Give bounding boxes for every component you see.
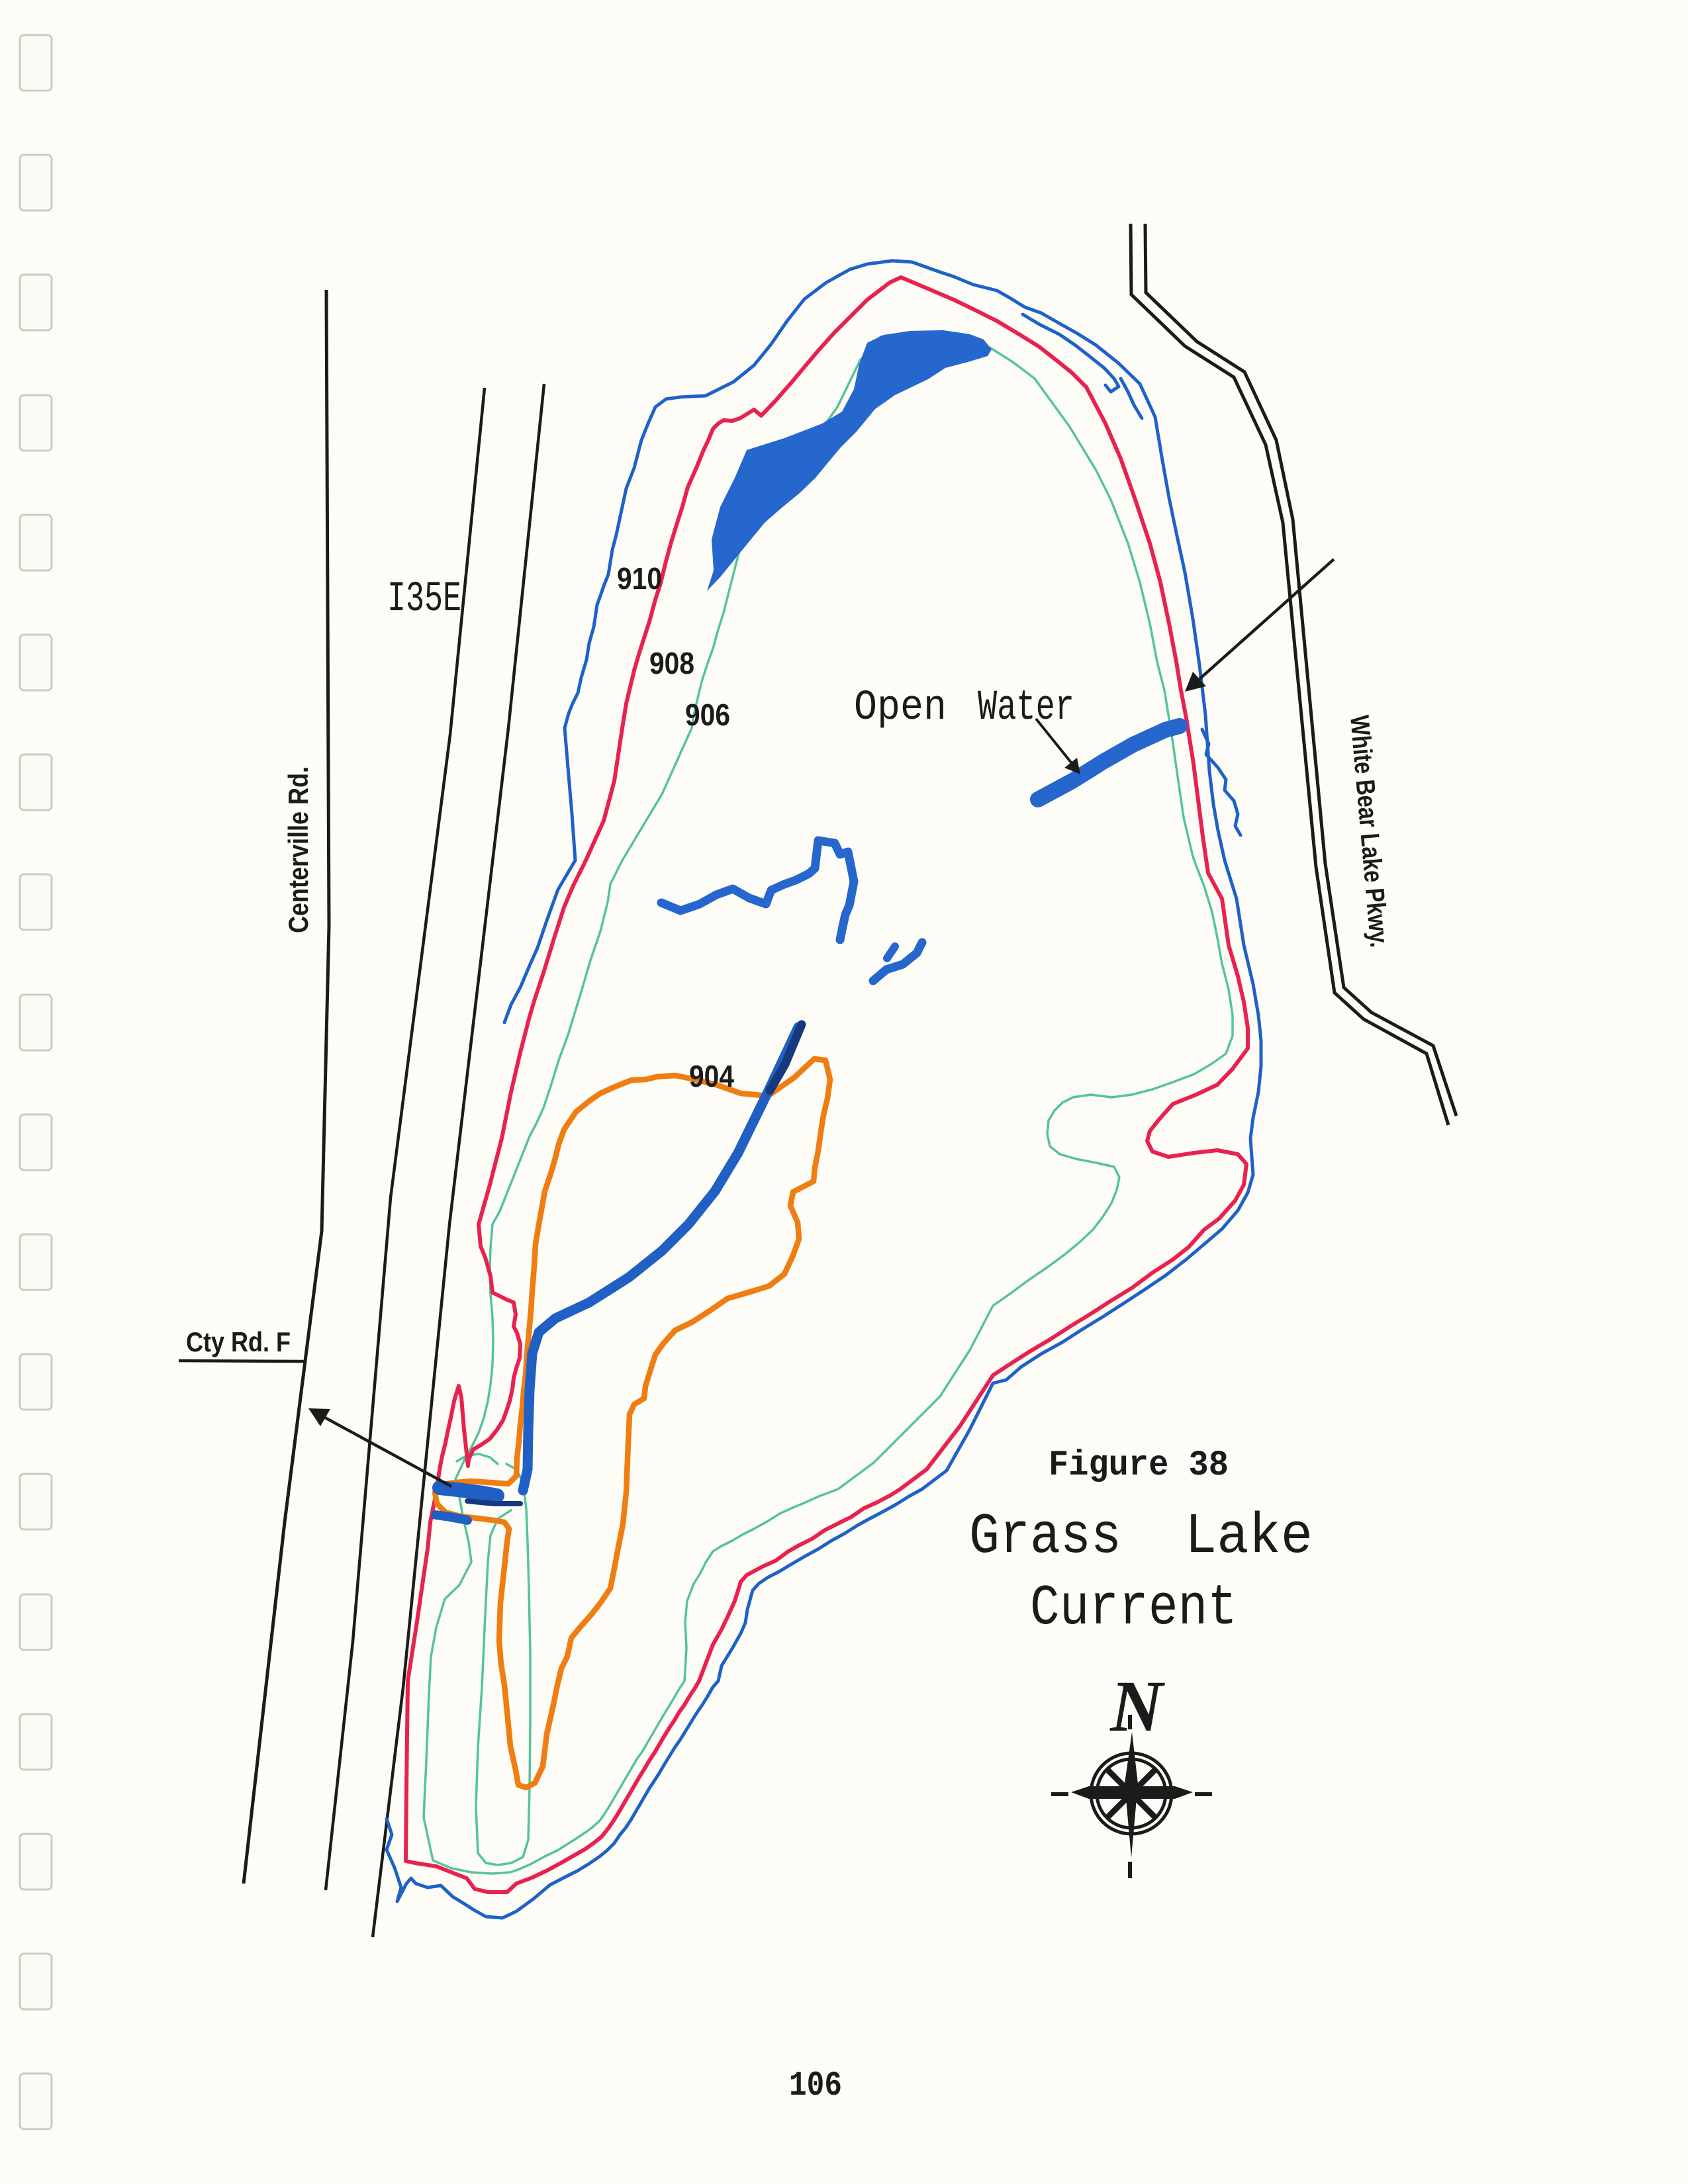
svg-text:Open: Open: [854, 684, 947, 732]
svg-text:Lake: Lake: [1185, 1504, 1313, 1569]
svg-text:106: 106: [789, 2066, 842, 2105]
svg-text:Current: Current: [1030, 1576, 1237, 1641]
svg-text:908: 908: [649, 646, 694, 680]
svg-text:N: N: [1109, 1666, 1165, 1747]
svg-text:906: 906: [685, 698, 730, 732]
svg-text:910: 910: [617, 561, 662, 596]
svg-text:Figure 38: Figure 38: [1049, 1445, 1229, 1486]
svg-text:Grass: Grass: [969, 1504, 1121, 1569]
svg-text:I35E: I35E: [387, 576, 461, 623]
svg-text:Cty Rd. F: Cty Rd. F: [186, 1326, 291, 1357]
svg-text:Water: Water: [978, 684, 1074, 732]
svg-text:904: 904: [689, 1059, 734, 1093]
svg-text:Centerville Rd.: Centerville Rd.: [283, 766, 314, 933]
